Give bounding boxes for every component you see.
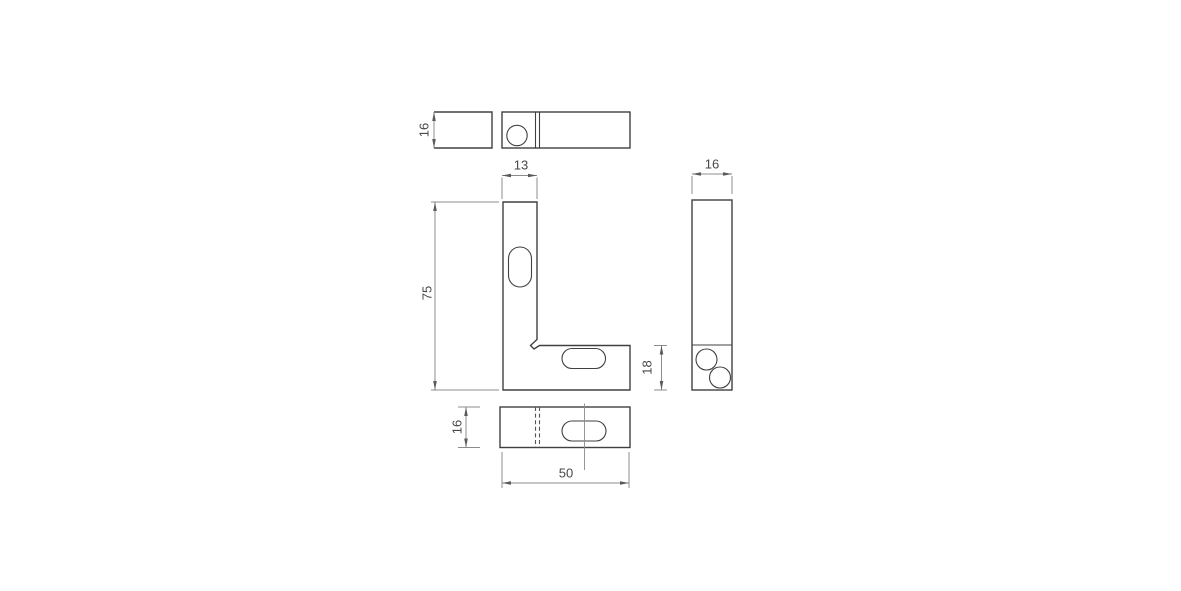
bottom-dim-label-16: 16 <box>450 420 465 434</box>
side-view: 16 <box>692 157 732 391</box>
front-view: 13 75 18 <box>420 158 668 391</box>
side-view-hole-circle-1 <box>696 349 717 370</box>
arrow-up-icon <box>433 202 437 211</box>
dim-label-13: 13 <box>514 158 528 173</box>
arrow-down-icon <box>660 381 664 390</box>
front-view-outline <box>503 202 630 390</box>
arrow-right-icon <box>723 172 732 176</box>
dim-label-75: 75 <box>420 286 435 300</box>
top-view-right-rect <box>502 112 630 148</box>
top-view-hole-circle <box>507 125 527 145</box>
vertical-slot <box>509 247 532 287</box>
arrow-up-icon <box>432 112 436 121</box>
arrow-up-icon <box>464 407 468 416</box>
horizontal-slot <box>562 349 606 369</box>
top-view: 16 <box>417 112 631 148</box>
dim-label-50: 50 <box>559 466 573 481</box>
drawing-canvas: 16 13 75 18 <box>0 0 1181 591</box>
dim-label-18: 18 <box>640 360 655 374</box>
top-view-dim-label-16: 16 <box>417 123 432 137</box>
side-dim-label-16: 16 <box>705 157 719 172</box>
side-view-rect <box>692 200 732 390</box>
arrow-left-icon <box>692 172 701 176</box>
arrow-up-icon <box>660 346 664 355</box>
arrow-right-icon <box>620 481 629 485</box>
engineering-drawing: 16 13 75 18 <box>0 0 1181 591</box>
bottom-view-slot <box>562 421 606 441</box>
arrow-down-icon <box>432 139 436 148</box>
arrow-left-icon <box>502 481 511 485</box>
arrow-down-icon <box>433 381 437 390</box>
arrow-down-icon <box>464 439 468 448</box>
arrow-right-icon <box>528 174 537 178</box>
bottom-view: 16 50 <box>450 404 631 489</box>
side-view-hole-circle-2 <box>710 367 731 388</box>
arrow-left-icon <box>502 174 511 178</box>
top-view-left-rect <box>434 112 492 148</box>
bottom-view-rect <box>500 407 630 448</box>
